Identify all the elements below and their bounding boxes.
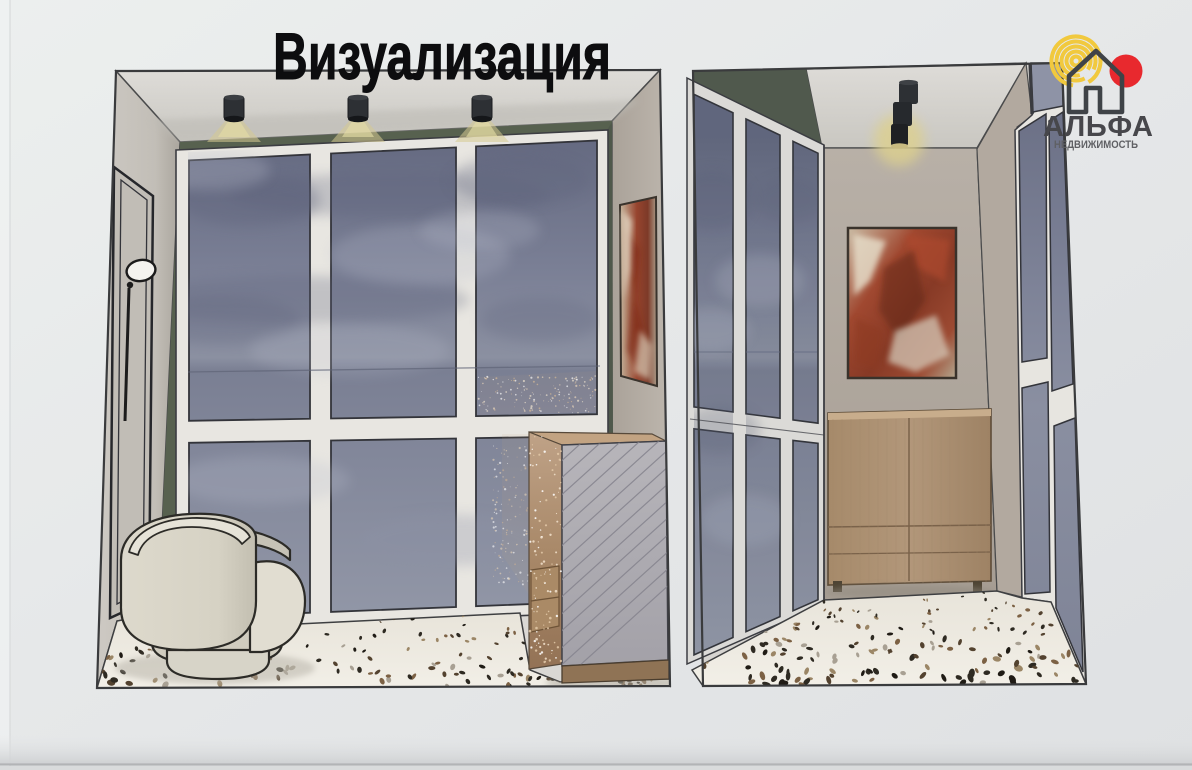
- svg-text:НЕДВИЖИМОСТЬ: НЕДВИЖИМОСТЬ: [1054, 139, 1138, 151]
- svg-text:Визуализация: Визуализация: [273, 19, 611, 93]
